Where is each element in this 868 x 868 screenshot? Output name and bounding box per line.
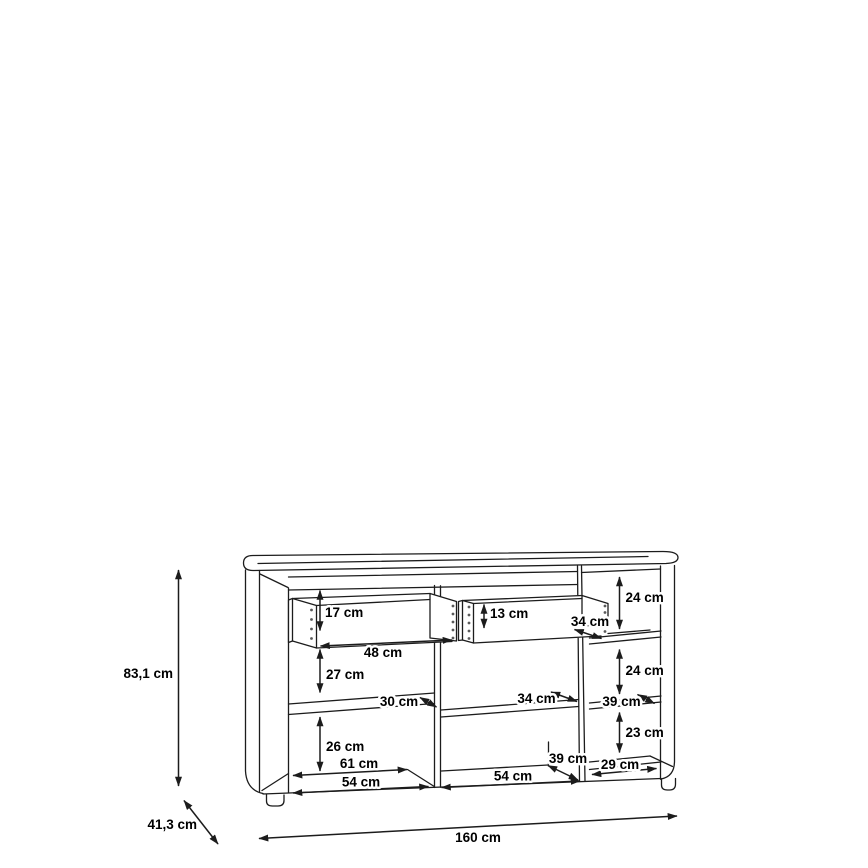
dim-label-drawer-mid-depth: 34 cm [571, 614, 609, 629]
dim-label-left-width-back: 61 cm [340, 756, 378, 771]
dim-label-left-upper-gap: 27 cm [326, 667, 364, 682]
top-panel [244, 552, 679, 571]
dim-label-mid-floor-depth: 39 cm [549, 751, 587, 766]
dim-label-depth: 41,3 cm [147, 817, 197, 832]
dim-label-drawer-left-depth: 48 cm [364, 645, 402, 660]
dimension-left-shelf-depth: 30 cm [380, 694, 437, 709]
dim-label-mid-width: 54 cm [494, 769, 532, 784]
dim-label-right-shelf-depth: 39 cm [602, 694, 640, 709]
left-side-panel [246, 570, 289, 794]
dim-label-left-shelf-depth: 30 cm [380, 694, 418, 709]
dimension-right-mid-gap: 24 cm [620, 650, 664, 695]
dim-label-drawer-left-height: 17 cm [325, 605, 363, 620]
dimension-mid-shelf-depth: 34 cm [517, 691, 577, 706]
dimension-overall-width: 160 cm [259, 816, 677, 845]
dim-label-right-mid-gap: 24 cm [626, 663, 664, 678]
dim-label-width: 160 cm [455, 830, 501, 845]
diagram-canvas: 83,1 cm 41,3 cm 160 cm 17 cm 48 cm 27 cm… [0, 0, 868, 868]
dimension-mid-floor-depth: 39 cm [548, 751, 587, 780]
dim-label-mid-shelf-depth: 34 cm [517, 691, 555, 706]
dimension-right-shelf-depth: 39 cm [602, 694, 654, 709]
top-rail [289, 572, 578, 591]
dim-label-right-upper-gap: 24 cm [626, 590, 664, 605]
dim-label-left-lower-gap: 26 cm [326, 739, 364, 754]
right-foot [662, 779, 676, 791]
sideboard-dimension-diagram: 83,1 cm 41,3 cm 160 cm 17 cm 48 cm 27 cm… [0, 0, 868, 868]
dim-label-right-width: 29 cm [601, 757, 639, 772]
dimension-left-width-front: 54 cm [293, 775, 429, 794]
left-foot [267, 795, 285, 807]
dim-label-height: 83,1 cm [123, 666, 173, 681]
drawer-left-open [289, 594, 457, 649]
dim-label-drawer-mid-height: 13 cm [490, 606, 528, 621]
dimension-left-width-back: 61 cm [293, 756, 407, 776]
dimension-right-upper-gap: 24 cm [620, 577, 664, 629]
dimension-right-lower-gap: 23 cm [620, 713, 664, 753]
dim-label-left-width-front: 54 cm [342, 775, 380, 790]
shelf-middle [441, 700, 579, 718]
dim-label-right-lower-gap: 23 cm [626, 725, 664, 740]
dimension-overall-height: 83,1 cm [123, 570, 178, 786]
dimension-right-width: 29 cm [592, 757, 657, 775]
dimension-left-upper-gap: 27 cm [320, 650, 364, 693]
dimension-overall-depth: 41,3 cm [147, 801, 218, 845]
